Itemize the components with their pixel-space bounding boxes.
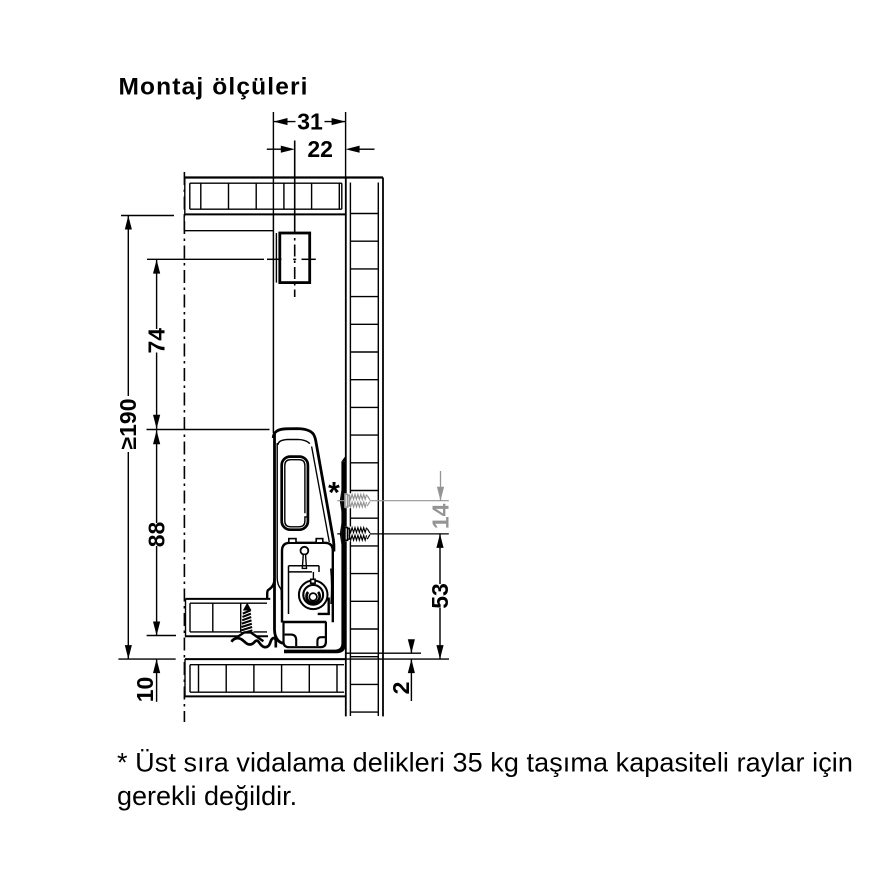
svg-text:88: 88 [144,522,170,548]
svg-text:Montaj ölçüleri: Montaj ölçüleri [119,74,309,101]
svg-text:≥190: ≥190 [115,399,141,450]
svg-text:* Üst sıra vidalama delikleri: * Üst sıra vidalama delikleri 35 kg taşı… [117,748,853,778]
svg-text:31: 31 [297,109,323,135]
svg-text:gerekli değildir.: gerekli değildir. [117,781,297,811]
svg-text:10: 10 [132,677,158,703]
svg-text:22: 22 [307,136,333,162]
svg-text:74: 74 [144,328,170,354]
svg-text:14: 14 [427,503,453,529]
svg-text:2: 2 [388,682,414,695]
svg-text:*: * [328,477,340,510]
svg-text:53: 53 [427,583,453,609]
